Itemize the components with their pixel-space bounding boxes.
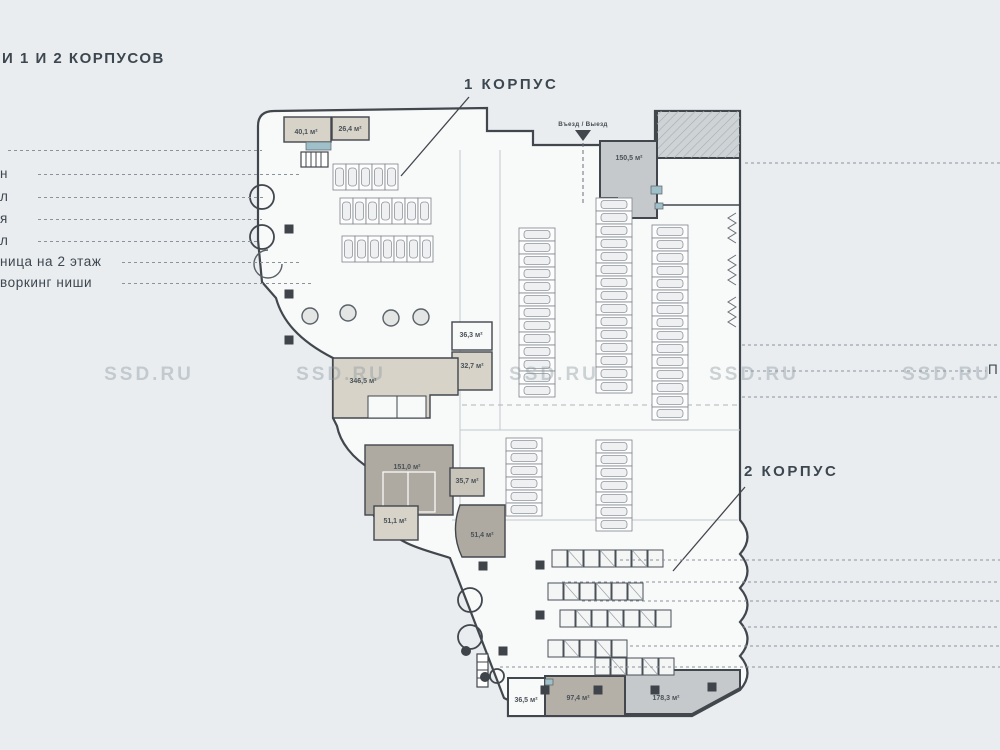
legend-row: я (0, 211, 340, 229)
legend-callout-line (122, 262, 302, 263)
room-area-label: 97,4 м² (566, 695, 590, 702)
legend-row: ница на 2 этаж (0, 254, 340, 272)
legend-row (0, 142, 340, 160)
legend-callout-line (38, 241, 260, 242)
room-area-label: 32,7 м² (460, 363, 484, 370)
room-area-label: 150,5 м² (616, 155, 644, 162)
room-area-label: 151,0 м² (394, 464, 422, 471)
room-area-label: 51,4 м² (470, 532, 494, 539)
watermark: SSD.RU (684, 364, 824, 386)
legend-callout-line (8, 150, 262, 151)
legend-row: н (0, 166, 340, 184)
room-area-label: 51,1 м² (383, 518, 407, 525)
legend-label-fragment: л (0, 233, 8, 248)
legend-label-fragment: л (0, 189, 8, 204)
legend-row: воркинг ниши (0, 275, 340, 293)
legend-callout-line (122, 283, 312, 284)
watermark: SSD.RU (79, 364, 219, 386)
room-area-label: 178,3 м² (653, 695, 681, 702)
legend-label-fragment: н (0, 166, 8, 181)
room-area-label: 35,7 м² (455, 478, 479, 485)
watermark: SSD.RU (877, 364, 1000, 386)
legend-callout-line (38, 197, 266, 198)
legend-label-fragment: ница на 2 этаж (0, 254, 102, 269)
entrance-arrow-icon (575, 130, 591, 141)
legend-label-fragment: воркинг ниши (0, 275, 92, 290)
room-area-label: 26,4 м² (338, 126, 362, 133)
legend-row: л (0, 233, 340, 251)
watermark: SSD.RU (484, 364, 624, 386)
legend-label-fragment: я (0, 211, 8, 226)
room-area-label: 36,3 м² (459, 332, 483, 339)
legend-callout-line (38, 174, 300, 175)
legend-row: л (0, 189, 340, 207)
legend-callout-line (38, 219, 262, 220)
room-area-label: 36,5 м² (514, 697, 538, 704)
floor-plan-page: Въезд / Выезд 40,1 м²26,4 м²150,5 м²36,3… (0, 0, 1000, 750)
watermark: SSD.RU (271, 364, 411, 386)
korpus2-label: 2 КОРПУС (744, 463, 838, 480)
entrance-label: Въезд / Выезд (558, 121, 607, 128)
room-area-label: 40,1 м² (294, 129, 318, 136)
page-title: И 1 И 2 КОРПУСОВ (2, 50, 165, 67)
korpus1-label: 1 КОРПУС (464, 76, 558, 93)
